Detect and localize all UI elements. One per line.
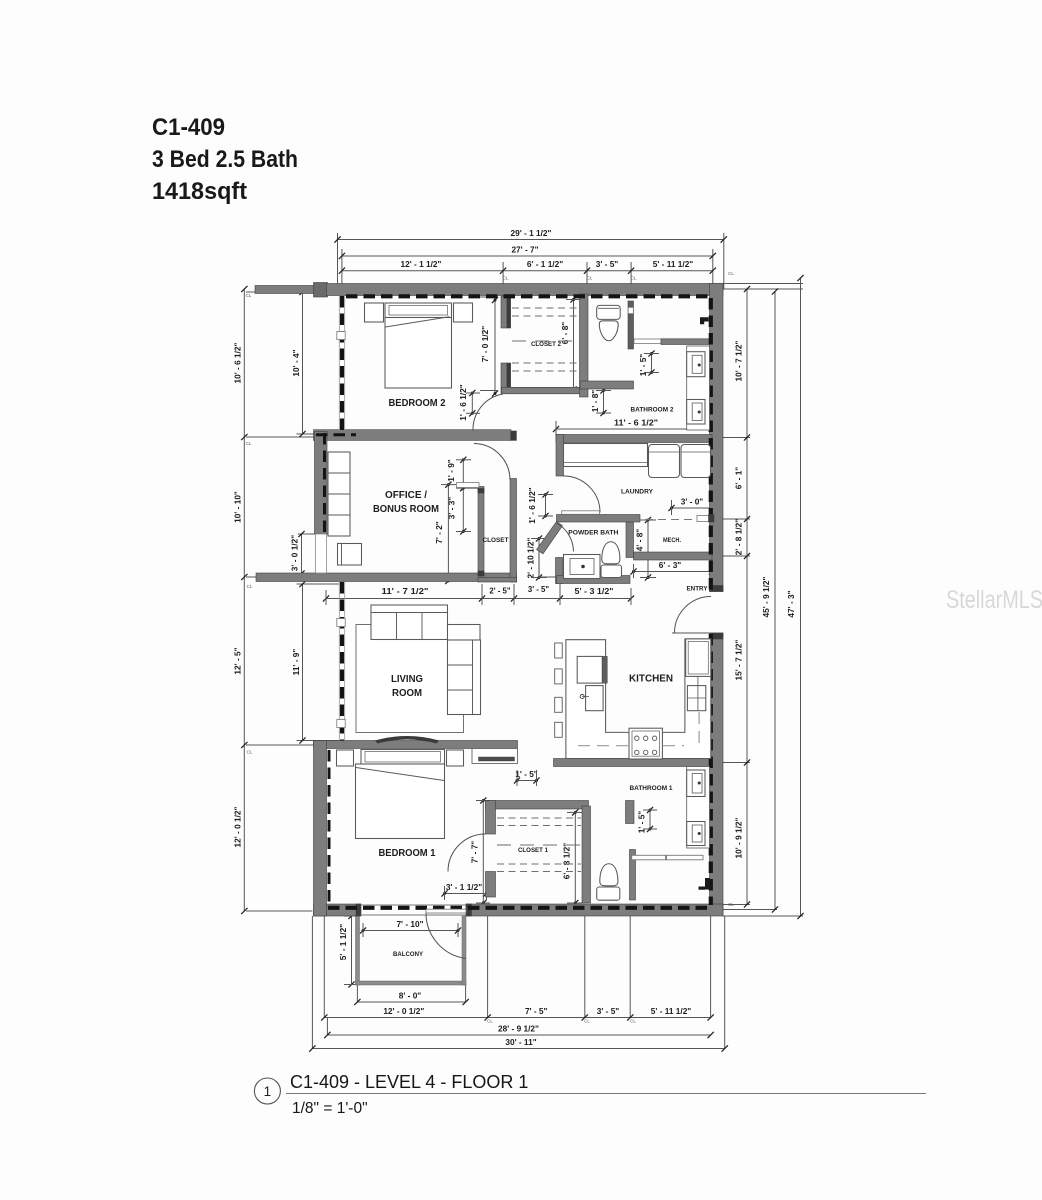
svg-text:ROOM: ROOM <box>392 687 422 699</box>
svg-text:8' - 0": 8' - 0" <box>399 991 422 1001</box>
svg-text:11' - 9": 11' - 9" <box>291 649 301 676</box>
svg-text:1' - 8": 1' - 8" <box>590 390 600 413</box>
svg-text:27' - 7": 27' - 7" <box>511 245 538 255</box>
svg-text:C1-409 - LEVEL 4 - FLOOR 1: C1-409 - LEVEL 4 - FLOOR 1 <box>290 1072 528 1092</box>
svg-text:45' - 9 1/2": 45' - 9 1/2" <box>761 576 771 617</box>
svg-text:LAUNDRY: LAUNDRY <box>621 489 654 496</box>
svg-text:29' - 1 1/2": 29' - 1 1/2" <box>511 228 552 238</box>
svg-text:10' - 6 1/2": 10' - 6 1/2" <box>233 342 243 383</box>
svg-text:5' - 3 1/2": 5' - 3 1/2" <box>575 586 614 596</box>
svg-text:1' - 6 1/2": 1' - 6 1/2" <box>527 487 537 523</box>
svg-text:7' - 7": 7' - 7" <box>470 841 480 864</box>
svg-text:CL: CL <box>728 271 734 276</box>
svg-text:28' - 9 1/2": 28' - 9 1/2" <box>498 1024 539 1034</box>
svg-text:12' - 0 1/2": 12' - 0 1/2" <box>383 1006 424 1016</box>
svg-text:10' - 4": 10' - 4" <box>291 349 301 376</box>
svg-text:11' - 6 1/2": 11' - 6 1/2" <box>614 418 658 428</box>
svg-text:3' - 5": 3' - 5" <box>596 259 619 269</box>
svg-text:ENTRY: ENTRY <box>687 586 709 593</box>
svg-text:3' - 5": 3' - 5" <box>528 585 549 594</box>
svg-text:CL: CL <box>630 1019 636 1024</box>
svg-text:CLOSET 1: CLOSET 1 <box>518 847 548 854</box>
svg-text:4' - 8": 4' - 8" <box>635 529 645 552</box>
svg-text:StellarMLS: StellarMLS <box>946 586 1042 614</box>
svg-text:11' - 7 1/2": 11' - 7 1/2" <box>382 586 429 596</box>
svg-text:2' - 10 1/2": 2' - 10 1/2" <box>526 537 536 578</box>
svg-text:12' - 5": 12' - 5" <box>233 647 243 674</box>
svg-text:CL: CL <box>247 584 253 589</box>
svg-text:12' - 1 1/2": 12' - 1 1/2" <box>401 259 442 269</box>
svg-text:CLOSET 2: CLOSET 2 <box>531 341 561 348</box>
svg-text:2' - 8 1/2": 2' - 8 1/2" <box>734 519 744 555</box>
svg-text:12' - 0 1/2": 12' - 0 1/2" <box>233 806 243 847</box>
svg-text:BONUS ROOM: BONUS ROOM <box>373 503 439 515</box>
svg-text:CL: CL <box>246 293 252 298</box>
svg-text:7' - 0 1/2": 7' - 0 1/2" <box>480 326 490 362</box>
svg-text:BATHROOM 2: BATHROOM 2 <box>631 407 674 414</box>
svg-text:CL: CL <box>587 276 593 281</box>
svg-text:OFFICE /: OFFICE / <box>385 489 427 501</box>
svg-text:C1-409: C1-409 <box>152 114 225 141</box>
svg-text:BALCONY: BALCONY <box>393 951 424 958</box>
svg-text:CL: CL <box>246 441 252 446</box>
svg-text:CLOSET: CLOSET <box>483 537 509 544</box>
svg-text:CL: CL <box>487 1019 493 1024</box>
svg-text:6' - 1": 6' - 1" <box>734 467 744 490</box>
svg-text:47' - 3": 47' - 3" <box>786 590 796 617</box>
svg-text:6' - 3": 6' - 3" <box>659 560 682 570</box>
svg-text:CL: CL <box>247 750 253 755</box>
svg-text:3' - 5": 3' - 5" <box>597 1006 620 1016</box>
svg-text:7' - 5": 7' - 5" <box>525 1006 548 1016</box>
svg-text:2' - 5": 2' - 5" <box>489 587 510 596</box>
svg-text:5' - 1 1/2": 5' - 1 1/2" <box>338 924 348 960</box>
svg-text:6' - 1 1/2": 6' - 1 1/2" <box>527 259 563 269</box>
svg-text:KITCHEN: KITCHEN <box>629 673 673 685</box>
svg-text:10' - 10": 10' - 10" <box>233 491 243 523</box>
svg-text:CL: CL <box>584 1019 590 1024</box>
svg-text:5' - 11 1/2": 5' - 11 1/2" <box>653 259 694 269</box>
svg-text:1' - 5": 1' - 5" <box>637 811 647 834</box>
svg-text:1418sqft: 1418sqft <box>152 178 247 205</box>
svg-text:BEDROOM 1: BEDROOM 1 <box>379 847 436 859</box>
svg-text:CL: CL <box>631 276 637 281</box>
svg-text:1' - 9": 1' - 9" <box>446 459 456 482</box>
svg-text:CL: CL <box>728 902 734 907</box>
svg-text:6' - 8 1/2": 6' - 8 1/2" <box>562 843 572 879</box>
svg-text:3 Bed 2.5 Bath: 3 Bed 2.5 Bath <box>152 146 298 173</box>
svg-text:1' - 6 1/2": 1' - 6 1/2" <box>458 384 468 420</box>
svg-text:CL: CL <box>503 276 509 281</box>
svg-text:LIVING: LIVING <box>391 673 423 685</box>
svg-text:3' - 0": 3' - 0" <box>681 497 704 507</box>
svg-text:30' - 11": 30' - 11" <box>505 1037 536 1047</box>
svg-text:1: 1 <box>264 1084 272 1099</box>
svg-text:1' - 5": 1' - 5" <box>515 769 538 779</box>
svg-text:7' - 10": 7' - 10" <box>396 919 423 929</box>
svg-text:3' - 0 1/2": 3' - 0 1/2" <box>290 535 300 571</box>
svg-text:10' - 7 1/2": 10' - 7 1/2" <box>734 340 744 381</box>
svg-text:15' - 7 1/2": 15' - 7 1/2" <box>734 639 744 680</box>
svg-text:7' - 2": 7' - 2" <box>434 521 444 544</box>
svg-text:BATHROOM 1: BATHROOM 1 <box>630 785 673 792</box>
svg-text:3' - 1 1/2": 3' - 1 1/2" <box>446 882 482 892</box>
svg-text:POWDER BATH: POWDER BATH <box>568 530 618 537</box>
svg-text:MECH.: MECH. <box>663 537 681 544</box>
svg-text:5' - 11 1/2": 5' - 11 1/2" <box>651 1006 692 1016</box>
svg-text:10' - 9 1/2": 10' - 9 1/2" <box>734 817 744 858</box>
svg-text:BEDROOM 2: BEDROOM 2 <box>389 397 446 409</box>
svg-text:1/8" = 1'-0": 1/8" = 1'-0" <box>292 1100 368 1117</box>
